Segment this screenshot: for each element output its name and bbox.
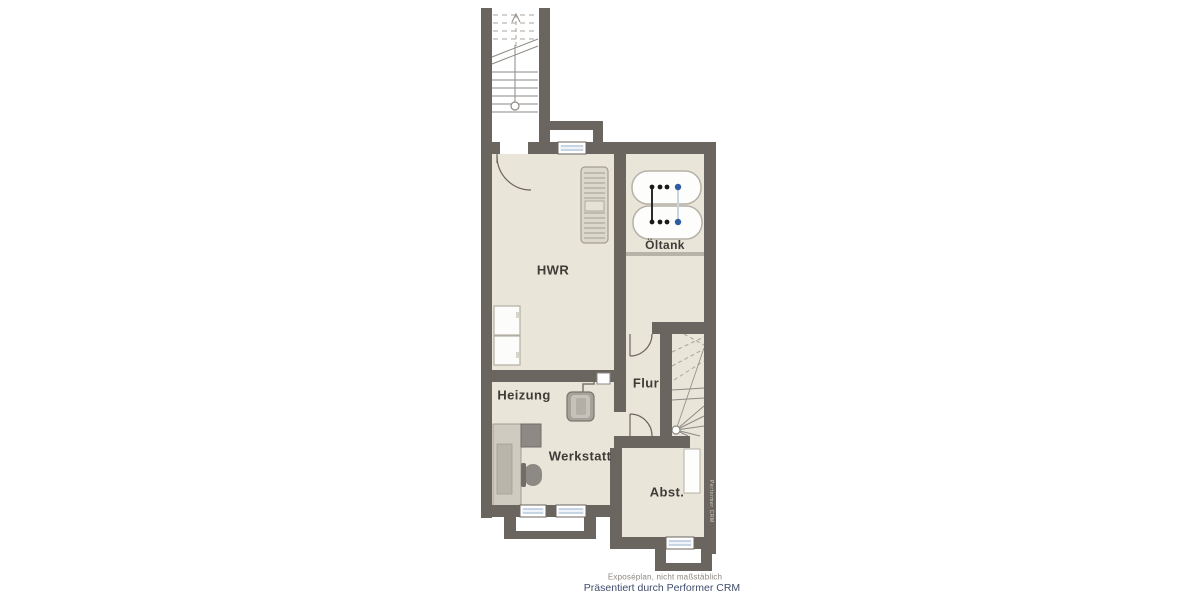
floorplan-drawing (0, 0, 1200, 600)
washer-icons (494, 306, 520, 365)
room-label-flur: Flur (633, 376, 659, 391)
abst-cupboard (684, 449, 700, 493)
window-abst (666, 537, 694, 549)
room-label-hwr: HWR (537, 263, 569, 278)
vertical-watermark: Performer CRM (704, 480, 714, 546)
top-staircase-icon (492, 14, 538, 112)
room-label-werkstatt: Werkstatt (549, 449, 612, 464)
room-label-oeltank: Öltank (645, 238, 685, 252)
chimney-box (597, 373, 610, 384)
plan-disclaimer: Exposéplan, nicht maßstäblich (608, 573, 722, 582)
window-werkstatt-2 (556, 505, 586, 517)
room-label-abstellraum: Abst. (650, 485, 685, 500)
window-werkstatt-1 (520, 505, 546, 517)
radiator-icon (581, 167, 608, 243)
oiltank-divider (626, 252, 704, 256)
floorplan-page: HWR Heizung Werkstatt Flur Öltank Abst. … (0, 0, 1200, 600)
window-top (558, 142, 586, 154)
plan-credit: Präsentiert durch Performer CRM (584, 582, 740, 594)
room-label-heizung: Heizung (497, 388, 550, 403)
